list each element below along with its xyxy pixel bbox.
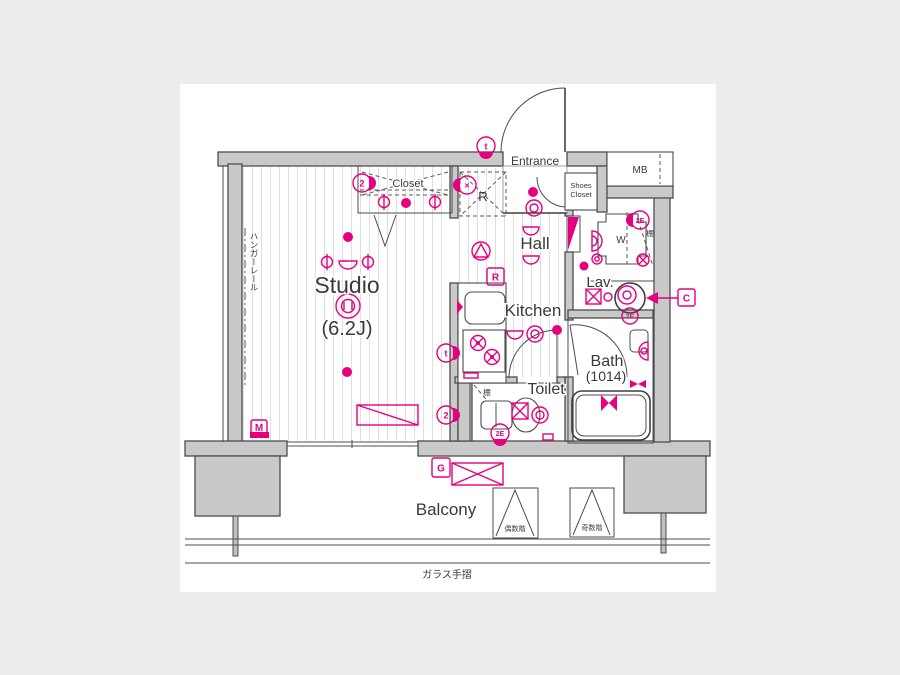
hall-label: Hall — [520, 234, 549, 253]
wall-left — [228, 164, 242, 443]
lav-shelf-label: 棚 — [646, 228, 654, 238]
pillar-right — [624, 456, 706, 513]
stove — [463, 330, 505, 372]
bath-size-label: (1014) — [586, 368, 626, 384]
svg-text:R: R — [492, 273, 500, 284]
wall-top-left — [218, 152, 503, 166]
glass-handrail-label: ガラス手摺 — [422, 568, 472, 581]
pillar-left — [195, 456, 280, 516]
wall-bottom-left — [185, 441, 287, 456]
svg-text:t: t — [445, 349, 448, 359]
studio-label: Studio — [314, 272, 379, 298]
even-floors-label: 偶数階 — [505, 524, 526, 533]
balcony-label: Balcony — [416, 500, 477, 519]
closet-label: Closet — [392, 178, 423, 190]
svg-text:2: 2 — [359, 179, 364, 189]
kitchen-label: Kitchen — [505, 301, 562, 320]
svg-text:M: M — [255, 423, 263, 434]
wall-right — [654, 196, 670, 442]
svg-text:t: t — [485, 142, 488, 152]
kitchen-sink — [465, 292, 505, 324]
svg-text:2E: 2E — [636, 218, 645, 225]
svg-text:2E: 2E — [496, 431, 505, 438]
mb-label: MB — [633, 165, 648, 176]
balcony-post-left — [233, 516, 238, 556]
studio-area-label: (6.2J) — [321, 318, 372, 340]
wall-top-right — [567, 152, 607, 166]
kitchen-counter — [457, 283, 506, 383]
wall-studio-upper — [450, 166, 458, 218]
toilet-label: Toilet — [527, 381, 565, 398]
svg-text:G: G — [437, 464, 445, 475]
wall-shoes-closet — [597, 166, 607, 212]
svg-text:C: C — [683, 294, 690, 305]
floor-plan-svg: t 2 × t 2 2E 2E — [0, 0, 900, 675]
svg-text:×: × — [464, 181, 469, 191]
refrigerator-label: R — [478, 189, 487, 204]
wall-bottom-right — [418, 441, 710, 456]
balcony-post-right — [661, 513, 666, 553]
svg-text:2: 2 — [443, 411, 448, 421]
entrance-label: Entrance — [511, 154, 559, 168]
wall-lav-bath — [568, 310, 653, 318]
svg-text:2E: 2E — [626, 314, 635, 321]
hanger-rail-label: ハンガーレール — [249, 232, 259, 292]
shoes-closet-label-2: Closet — [570, 190, 592, 199]
wall-under-mb — [600, 186, 673, 198]
washer-label: W — [616, 235, 626, 246]
floor-plan-page: t 2 × t 2 2E 2E — [0, 0, 900, 675]
toilet-shelf-label: 棚 — [483, 387, 491, 397]
shoes-closet-label-1: Shoes — [570, 181, 592, 190]
lavatory-label: Lav. — [586, 274, 613, 291]
odd-floors-label: 奇数階 — [582, 523, 603, 532]
